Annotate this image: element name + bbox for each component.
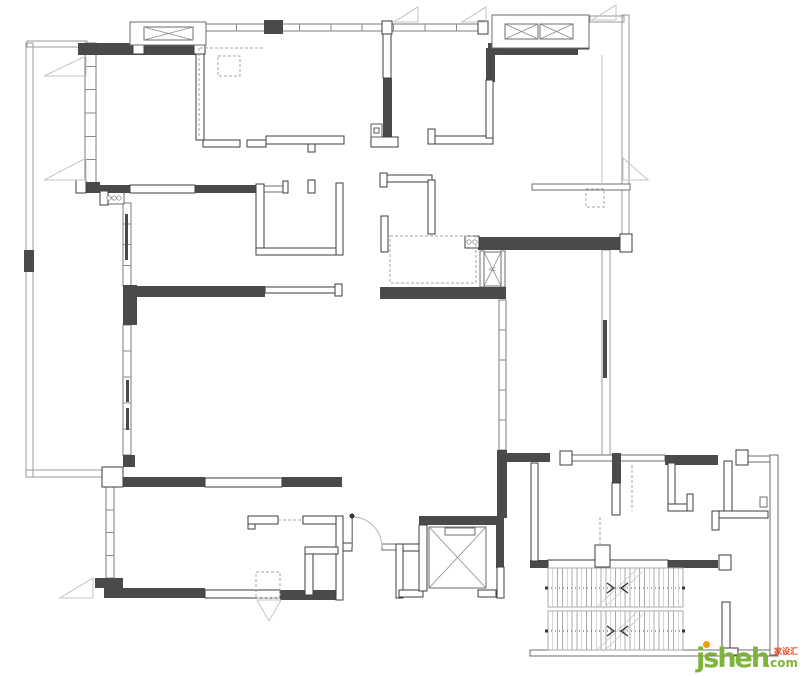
watermark-brand: jsheh [696,645,768,672]
outlet-symbol-layer [371,124,382,137]
watermark-tld: .com [766,656,798,670]
window-layer [85,24,506,578]
elevator-shaft [429,527,486,588]
ac-shaft: A/C [484,252,501,286]
watermark: jsheh 家设汇 .com [692,643,798,676]
staircase [545,568,685,652]
ac-label: A/C [489,267,497,273]
entry-door [350,514,383,548]
wall-layer [76,16,768,655]
floor-plan-canvas: A/C [0,0,800,677]
floor-plan: A/C jsheh 家设汇 .com [0,0,800,677]
watermark-dot-icon [703,641,710,648]
